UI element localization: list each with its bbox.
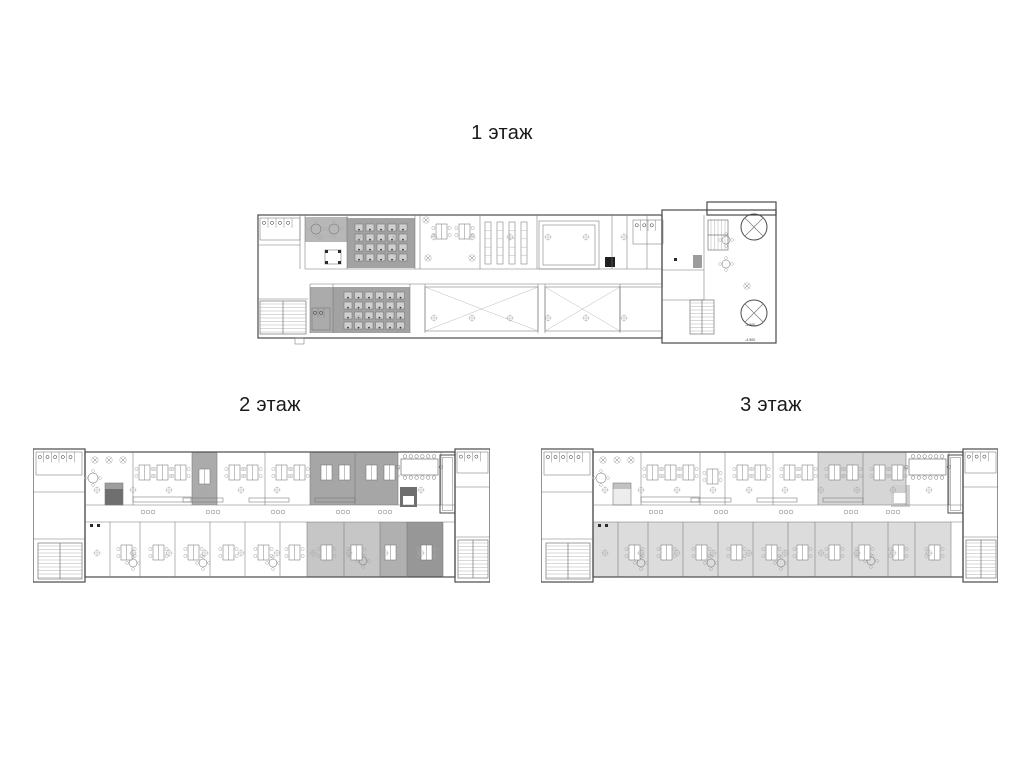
floor-plans-sheet: 1 этаж 2 этаж 3 этаж -4.500-4.500	[0, 0, 1024, 768]
floor-2-plan	[33, 447, 490, 584]
floor-2-label: 2 этаж	[239, 393, 301, 417]
floor-3-plan	[541, 447, 998, 584]
floor-3-label: 3 этаж	[740, 393, 802, 417]
floor-1-label: 1 этаж	[471, 121, 533, 145]
floor-1-plan: -4.500-4.500	[256, 200, 780, 350]
svg-text:-4.500: -4.500	[745, 338, 755, 342]
svg-text:-4.500: -4.500	[745, 323, 755, 327]
shaded-rooms	[305, 217, 702, 333]
